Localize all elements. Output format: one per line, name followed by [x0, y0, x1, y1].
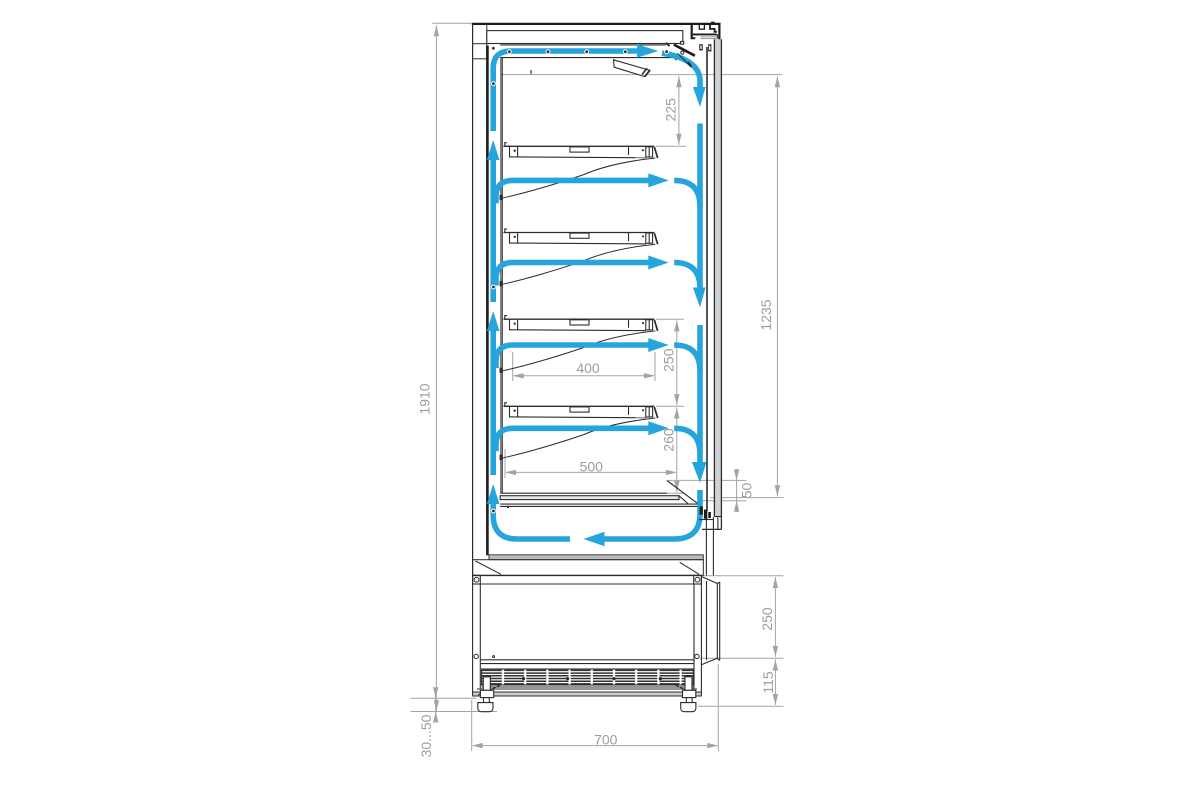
svg-text:1235: 1235 [758, 299, 774, 330]
svg-text:115: 115 [760, 671, 776, 694]
svg-text:260: 260 [661, 428, 677, 452]
svg-text:225: 225 [663, 98, 679, 122]
svg-text:30...50: 30...50 [418, 714, 434, 757]
svg-text:50: 50 [738, 483, 754, 499]
svg-text:500: 500 [580, 458, 604, 474]
svg-text:250: 250 [759, 607, 775, 631]
svg-text:250: 250 [661, 348, 677, 372]
svg-text:700: 700 [594, 732, 618, 748]
svg-text:400: 400 [576, 360, 600, 376]
svg-text:1910: 1910 [417, 383, 433, 414]
